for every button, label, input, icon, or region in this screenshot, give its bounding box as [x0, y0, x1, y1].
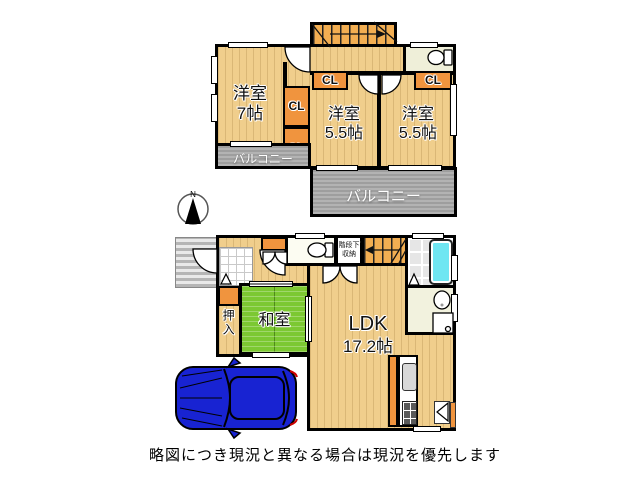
closet-cl: CL: [414, 71, 452, 90]
balcony-label: バルコニー: [313, 185, 454, 206]
room-size: 7帖: [214, 104, 286, 124]
room-label-west7: 洋室 7帖: [214, 84, 286, 124]
kitchen-unit: [398, 355, 418, 427]
window: [295, 233, 325, 239]
shoe-cabinet: [261, 237, 287, 251]
window: [412, 233, 444, 239]
kitchen-sink: [402, 363, 417, 391]
oshiire-label: 押入: [221, 309, 235, 337]
kitchen-counter: [388, 355, 398, 427]
room-label-east55: 洋室 5.5帖: [380, 106, 456, 144]
room-label-center55: 洋室 5.5帖: [308, 106, 380, 144]
closet-cl: CL: [312, 71, 348, 90]
bathtub: [429, 239, 453, 285]
window: [451, 294, 458, 322]
floorplan-canvas: CL CL CL CL バルコニー バルコニー 洋室 7帖 洋室 5.5帖 洋室…: [0, 0, 640, 480]
window: [230, 141, 272, 147]
under-stair-storage: 階段下 収納: [335, 235, 363, 266]
genkan-entry: [219, 247, 253, 286]
closet-label: CL: [289, 99, 305, 113]
hood-lines: [180, 370, 222, 426]
car-mirror: [228, 358, 240, 367]
room-size: 5.5帖: [380, 125, 456, 144]
closet-label: CL: [425, 73, 441, 87]
room-size: 5.5帖: [308, 125, 380, 144]
closet-label: CL: [322, 73, 338, 87]
car-illustration: [176, 358, 297, 438]
room-size: 17.2帖: [318, 337, 418, 357]
window: [410, 42, 438, 48]
room-name: 洋室: [380, 106, 456, 125]
toilet-room-1f: [285, 235, 337, 266]
taillight: [290, 371, 297, 377]
closet-cl: CL: [283, 86, 310, 127]
balcony-label: バルコニー: [218, 150, 308, 167]
back-door: [434, 401, 450, 424]
entrance-approach: [175, 237, 219, 288]
stairs-1f: [361, 235, 408, 266]
window: [451, 255, 458, 281]
taillight: [290, 419, 297, 425]
room-name: LDK: [318, 313, 418, 337]
windshield-line: [224, 369, 230, 427]
tatami-room: 和室: [239, 283, 310, 355]
balcony-south: バルコニー: [310, 167, 457, 217]
car-roof: [230, 377, 284, 419]
compass-circle: [178, 194, 208, 224]
window: [211, 94, 218, 122]
room-name: 洋室: [308, 106, 380, 125]
room-label-ldk: LDK 17.2帖: [318, 313, 418, 357]
disclaimer-caption: 略図につき現況と異なる場合は現況を優先します: [90, 444, 560, 465]
window: [228, 42, 268, 48]
window: [450, 84, 457, 136]
tokonoma-closet: [218, 286, 240, 306]
car-mirror: [228, 429, 240, 438]
sliding-door: [305, 296, 312, 342]
rear-window-line: [283, 371, 289, 425]
window: [211, 56, 218, 84]
window: [388, 165, 442, 171]
sliding-door: [249, 281, 293, 287]
room-label-washitsu: 和室: [242, 312, 307, 331]
kitchen-stove: [402, 401, 417, 425]
window: [413, 426, 441, 432]
compass: N: [178, 190, 208, 224]
cabinet: [450, 402, 456, 428]
room-name: 洋室: [214, 84, 286, 104]
compass-north-label: N: [190, 190, 196, 199]
north-arrow-icon: [185, 198, 201, 224]
storage-label: 階段下 収納: [338, 241, 360, 259]
window: [252, 352, 290, 358]
window: [316, 165, 358, 171]
